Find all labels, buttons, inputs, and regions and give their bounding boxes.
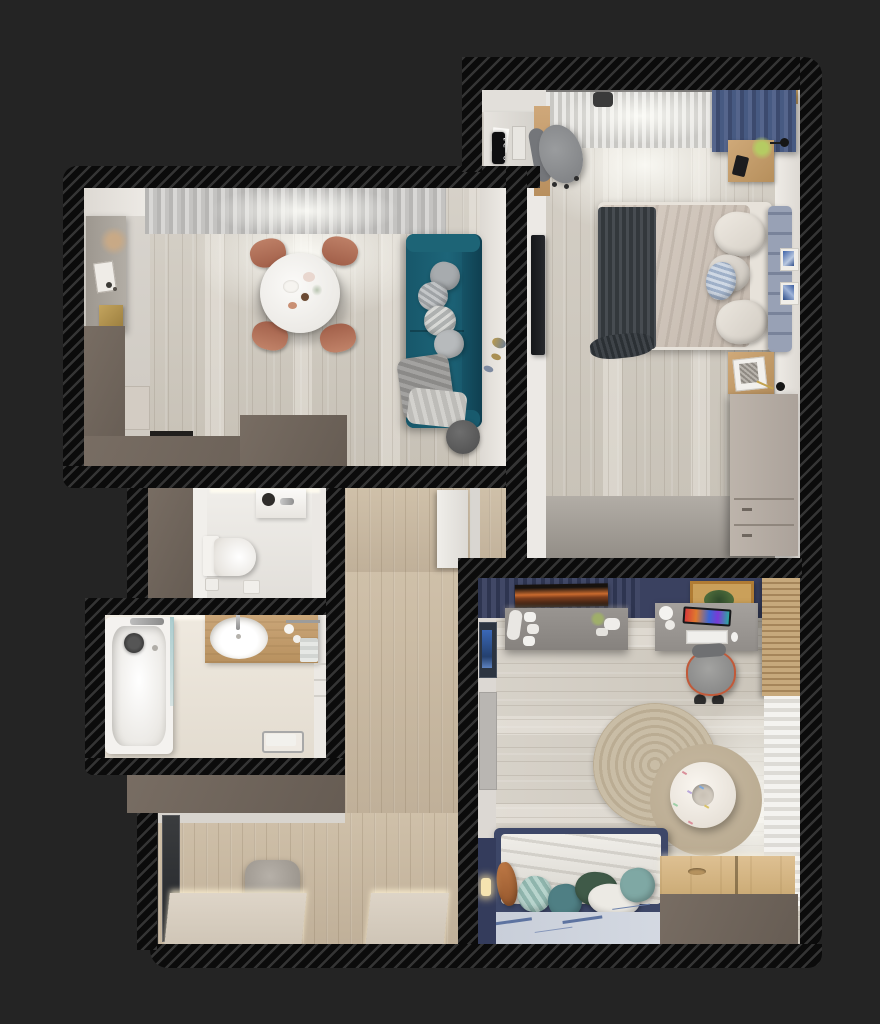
wall-right-exterior <box>800 57 822 950</box>
toiletry-bottle <box>284 624 294 634</box>
wc-left-partition-top <box>148 488 193 598</box>
dresser-drawer-line <box>734 524 794 526</box>
wall-living-right <box>506 166 527 572</box>
wall-bedroom-kids-divider <box>458 558 802 578</box>
blue-art-inner <box>783 285 794 300</box>
kids-chair-seat <box>686 650 736 696</box>
lit-cabinet-left <box>164 893 307 946</box>
kids-keyboard <box>686 630 728 644</box>
kids-chair-backrest <box>692 643 727 658</box>
kitchen-cabinet-door <box>122 386 150 430</box>
leaning-picture-frame <box>93 261 117 293</box>
shower-head <box>124 633 144 653</box>
wall-bath-top <box>85 598 326 615</box>
kids-wall-switch-glow <box>481 878 491 896</box>
wall-lamp-south-head <box>776 382 785 391</box>
pastry <box>288 302 297 309</box>
dresser-handle <box>742 508 752 511</box>
lit-cabinet-right <box>365 893 449 950</box>
bed-throw-dark <box>598 207 656 349</box>
wall-wc-bath-right <box>326 488 345 775</box>
rack-towel <box>266 734 296 746</box>
bench-seam <box>735 856 738 896</box>
bed-headboard <box>768 206 792 352</box>
wall-living-bottom <box>63 466 527 488</box>
kids-wall-grey-panel <box>479 692 497 790</box>
gold-box <box>99 305 123 326</box>
kids-mouse <box>731 632 738 642</box>
living-window-glare <box>210 186 400 236</box>
wall-bath-bottom <box>85 758 345 775</box>
digital-clock: 8:31 <box>492 132 505 164</box>
toilet-bowl <box>214 538 256 576</box>
window-bench-top <box>660 856 795 896</box>
wc-right-wall-face <box>312 488 326 598</box>
corridor-floor <box>345 572 458 813</box>
pampas-plant <box>100 226 128 256</box>
kids-blinds <box>762 578 800 696</box>
desk-lamp <box>659 606 673 620</box>
counter-candles <box>106 282 112 288</box>
desk-keyboard <box>512 126 526 160</box>
shelf-gamepads <box>524 612 536 622</box>
flower-sprig <box>312 284 322 296</box>
chair-caster <box>552 182 557 187</box>
bath-mixer <box>130 618 164 625</box>
nightstand-plant <box>752 136 772 160</box>
open-door-leaf <box>437 490 468 568</box>
hall-top-partition <box>127 775 345 813</box>
bedroom-tv <box>531 235 545 355</box>
kids-wall-picture-art <box>482 630 492 668</box>
wall-bedroom-left-upper <box>462 57 482 172</box>
sink-drain <box>236 634 241 639</box>
shelf-headset <box>604 618 620 630</box>
dessert-plate <box>303 272 315 282</box>
bench-front-face <box>660 894 798 946</box>
apartment-floor-plan-render: 8:31 <box>0 0 880 1024</box>
glass-screen <box>170 617 174 706</box>
wall-living-left <box>63 166 84 488</box>
wc-floor-bin <box>243 580 260 594</box>
wc-basin-faucet <box>280 498 294 505</box>
sink-faucet <box>236 614 240 630</box>
bedroom-window-glare <box>560 88 720 144</box>
living-top-left-wall-face <box>84 188 150 216</box>
sofa-armrest-top <box>406 234 480 252</box>
wall-kids-left <box>458 558 478 950</box>
bedroom-dresser <box>730 394 798 556</box>
wall-bottom-exterior <box>150 944 822 968</box>
wall-wc-left <box>127 488 148 598</box>
side-table <box>446 420 480 454</box>
sunset-poster <box>515 583 608 608</box>
wc-basin-bowl <box>262 493 275 506</box>
hallway-north-wall-face <box>158 813 345 823</box>
clock-time: 8:31 <box>492 132 505 164</box>
wall-bedroom-top <box>462 57 822 90</box>
living-partition-block <box>240 415 347 466</box>
breakfast-plate <box>283 280 299 293</box>
blue-art-inner <box>783 251 794 266</box>
kids-blue-rug <box>476 912 668 944</box>
ceiling-speaker <box>593 92 613 107</box>
tub-drain <box>152 645 158 651</box>
dresser-drawer-line <box>734 498 794 500</box>
towel-bar <box>286 620 320 623</box>
wall-lamp-north-head <box>780 138 789 147</box>
wall-bath-left <box>85 598 105 775</box>
bench-pull-hole <box>688 868 706 875</box>
living-right-wall-face <box>480 188 506 466</box>
folded-towels <box>300 638 318 662</box>
donut-hole <box>692 784 714 806</box>
toilet-paper-holder <box>205 578 219 591</box>
coffee-cup <box>300 292 310 302</box>
